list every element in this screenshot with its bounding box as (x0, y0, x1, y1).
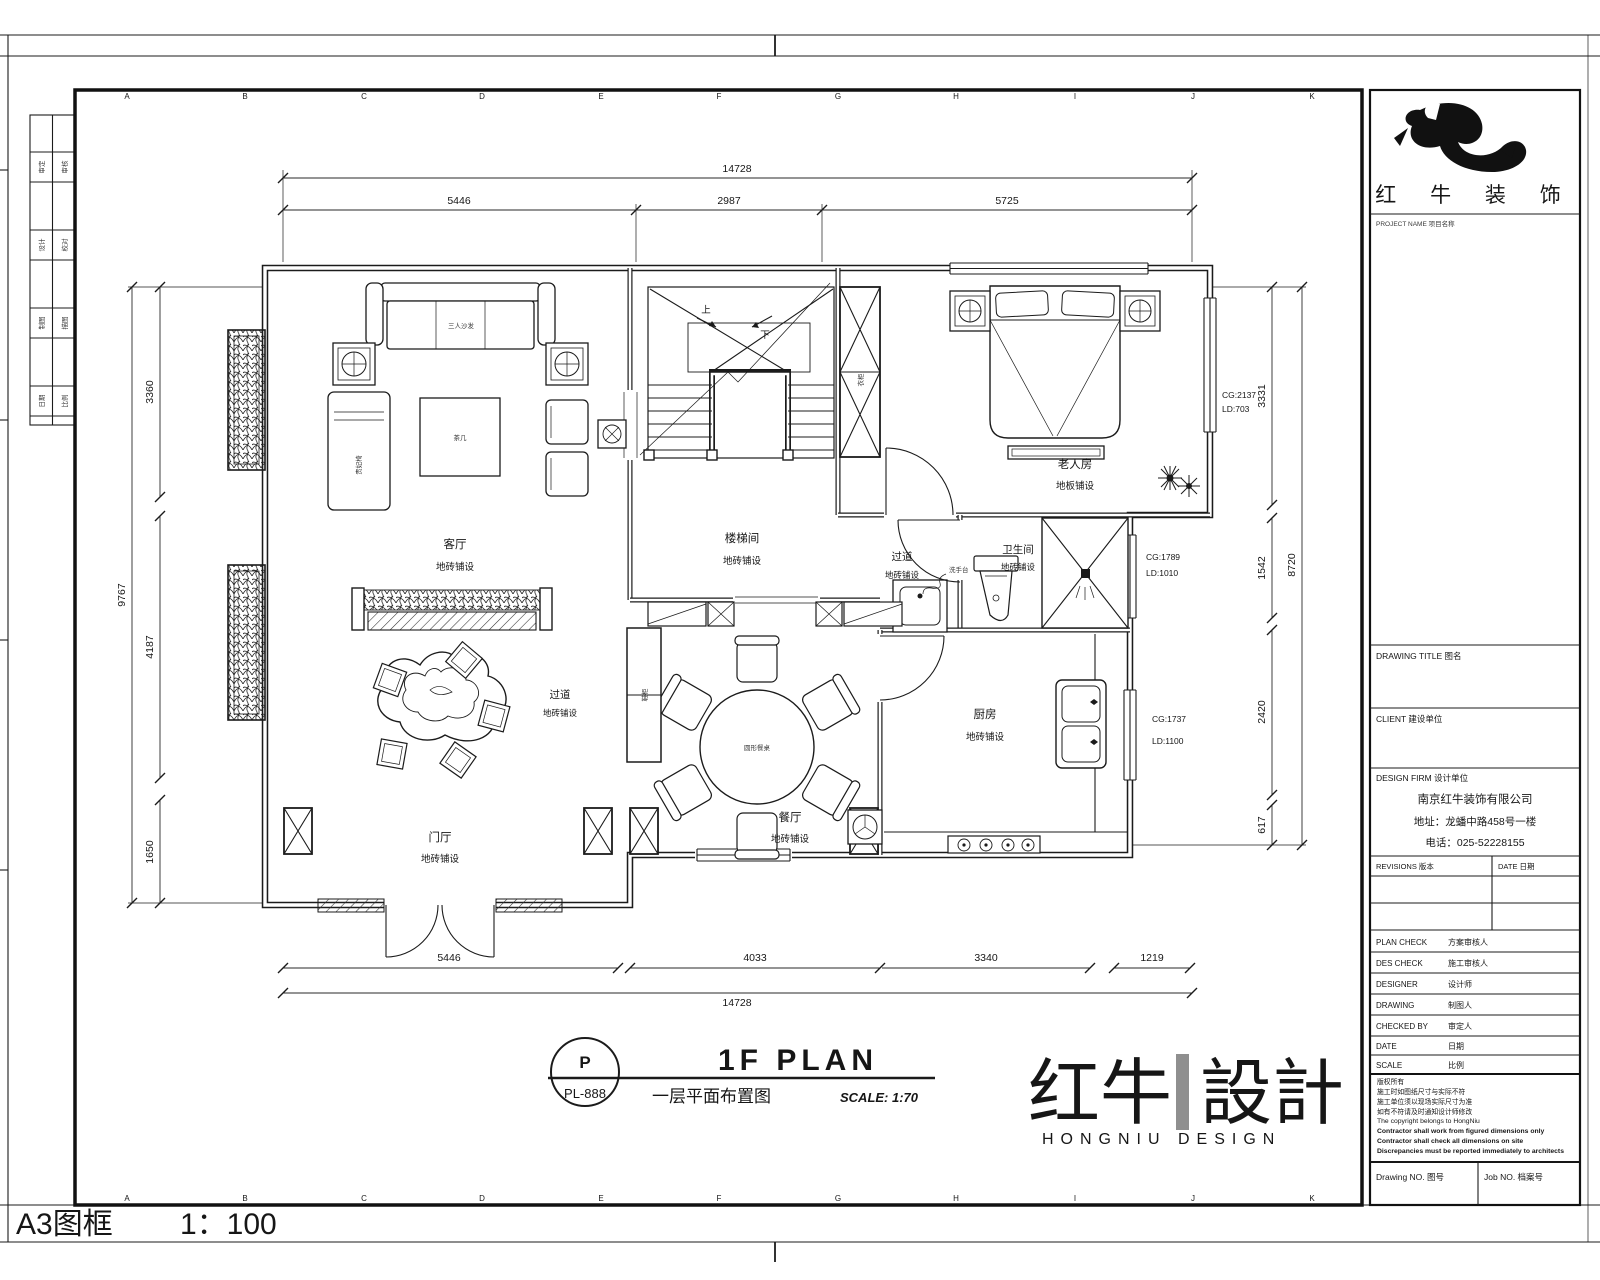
annotation: LD:1100 (1152, 736, 1184, 746)
dim-text: 5446 (447, 195, 471, 207)
grid-letter: D (479, 1194, 485, 1203)
grid-letter: A (124, 92, 130, 101)
grid-letter: F (717, 92, 722, 101)
fold-cell-label: 描图 (60, 317, 69, 330)
armchair (546, 452, 588, 496)
grid-letter: J (1191, 1194, 1195, 1203)
row-label-en: DESIGNER (1376, 980, 1418, 989)
note-line: Discrepancies must be reported immediate… (1377, 1148, 1564, 1155)
radiator (648, 602, 734, 626)
grid-letter: F (717, 1194, 722, 1203)
grid-letter: B (242, 1194, 247, 1203)
dim-text: 8720 (1286, 553, 1298, 577)
wardrobe-label: 衣柜 (856, 373, 865, 387)
row-label-en: DATE (1376, 1042, 1397, 1051)
bay-window-planter-bottom (228, 565, 265, 720)
company-phone: 电话：025-52228155 (1425, 836, 1524, 849)
bed (990, 286, 1120, 438)
room-label-bedroom: 老人房地板铺设 (1056, 458, 1095, 492)
dim-text: 3360 (144, 380, 156, 404)
note-line: 施工时如图纸尺寸与实际不符 (1377, 1087, 1466, 1096)
row-label-en: DRAWING (1376, 1001, 1414, 1010)
entry-decor (373, 642, 510, 778)
radiator (816, 602, 902, 626)
row-label-cn: 设计师 (1448, 979, 1472, 989)
dim-text: 14728 (722, 163, 751, 175)
side-table-lamp (333, 343, 375, 385)
svg-text:上: 上 (701, 305, 711, 316)
design-firm-label: DESIGN FIRM 设计单位 (1376, 773, 1469, 783)
annotation: CG:2137 (1222, 390, 1256, 400)
chaise-lounge: 贵妃椅 (328, 392, 390, 510)
window-right-2 (1123, 690, 1137, 780)
dim-right: 3331 1542 2420 617 8720 (1133, 282, 1307, 850)
title-code-letter: P (579, 1053, 590, 1072)
row-label-en: SCALE (1376, 1061, 1402, 1070)
row-label-cn: 施工审核人 (1448, 958, 1488, 968)
bathroom-fixtures: 洗手台 (893, 518, 1128, 632)
bedroom-door (886, 448, 953, 515)
dim-text: 3340 (974, 952, 998, 964)
a3-drawing-sheet: 审定 审核 设计 校对 制图 描图 日期 比例 A B C D E F G H … (0, 0, 1600, 1280)
room-label-kitchen: 厨房地砖铺设 (966, 708, 1005, 743)
a3-frame-scale: 1：100 (180, 1208, 277, 1241)
fold-cell-label: 比例 (60, 395, 69, 408)
armchair (546, 400, 588, 444)
dim-text: 4033 (743, 952, 767, 964)
grid-letter: I (1074, 1194, 1076, 1203)
fold-cell-label: 设计 (37, 238, 46, 252)
stair-down-arrow: 下 (752, 316, 772, 341)
svg-text:下: 下 (760, 330, 770, 341)
annotation: LD:703 (1222, 404, 1250, 414)
living-room-furniture: 三人沙发 贵妃椅 茶几 (328, 283, 626, 630)
svg-text:地砖铺设: 地砖铺设 (436, 561, 475, 573)
window-annotations: CG:2137 LD:703 CG:1789 LD:1010 CG:1737 L… (1146, 390, 1256, 746)
svg-text:门厅: 门厅 (429, 830, 452, 844)
date-col-label: DATE 日期 (1498, 862, 1535, 871)
svg-text:楼梯间: 楼梯间 (725, 531, 760, 545)
grid-letter: K (1309, 1194, 1315, 1203)
row-label-cn: 审定人 (1448, 1021, 1472, 1031)
plan-title-en: 1F PLAN (718, 1044, 878, 1077)
grid-letters-bottom: A B C D E F G H I J K (124, 1194, 1315, 1203)
svg-text:老人房: 老人房 (1058, 458, 1093, 471)
grid-letters-top: A B C D E F G H I J K (124, 92, 1315, 101)
annotation: LD:1010 (1146, 568, 1178, 578)
fold-cell-label: 日期 (38, 394, 46, 408)
note-line: The copyright belongs to HongNiu (1377, 1118, 1480, 1125)
sheet-format-label: A3图框 1：100 (16, 1208, 277, 1241)
grid-letter: C (361, 92, 367, 101)
window-bedroom-top (950, 262, 1148, 275)
svg-text:厨房: 厨房 (974, 708, 997, 721)
room-label-corridor-east: 过道地砖铺设 (885, 550, 920, 580)
dim-text: 617 (1256, 816, 1268, 834)
note-line: 如有不符请及时通知设计师修改 (1377, 1107, 1472, 1116)
svg-text:地板铺设: 地板铺设 (1056, 480, 1095, 492)
drawing-title-group: P PL-888 1F PLAN 一层平面布置图 SCALE: 1:70 (548, 1038, 935, 1106)
company-address: 地址：龙蟠中路458号一楼 (1414, 815, 1537, 828)
row-label-en: PLAN CHECK (1376, 938, 1428, 947)
stool (377, 739, 407, 769)
svg-text:地砖铺设: 地砖铺设 (543, 708, 578, 718)
dining-chair (735, 636, 779, 682)
row-label-cn: 日期 (1448, 1042, 1464, 1051)
fold-cell-label: 审核 (60, 160, 69, 174)
fold-cell-label: 校对 (60, 238, 69, 252)
company-name: 南京红牛装饰有限公司 (1418, 792, 1533, 806)
grid-letter: D (479, 92, 485, 101)
grid-letter: H (953, 1194, 959, 1203)
column-box (630, 808, 658, 854)
watermark-en: HONGNIU DESIGN (1042, 1131, 1281, 1148)
coffee-table-label: 茶几 (454, 433, 468, 442)
grid-letter: J (1191, 92, 1195, 101)
room-label-living: 客厅地砖铺设 (436, 537, 475, 573)
client-label: CLIENT 建设单位 (1376, 714, 1443, 724)
shoe-cabinet-label: 鞋柜 (640, 688, 649, 702)
kitchen-fixtures (848, 634, 1128, 853)
basin-label: 洗手台 (949, 565, 969, 574)
watermark-divider (1176, 1054, 1189, 1130)
grid-letter: E (598, 92, 603, 101)
stool (440, 742, 476, 778)
wardrobe-cabinet: 衣柜 (840, 287, 880, 457)
company-logo-text: 红 牛 装 饰 (1375, 184, 1575, 207)
svg-text:地砖铺设: 地砖铺设 (885, 570, 920, 580)
fold-strip-table: 审定 审核 设计 校对 制图 描图 日期 比例 (30, 115, 75, 425)
floor-drain-box (598, 420, 626, 448)
a3-frame-label: A3图框 (16, 1208, 113, 1241)
tv-feature-wall (352, 588, 552, 630)
dim-text: 14728 (722, 997, 751, 1009)
window-bedroom-right (1203, 298, 1217, 432)
grid-letter: H (953, 92, 959, 101)
nightstand-lamp (1120, 291, 1160, 331)
watermark-cn-left: 红牛 (1028, 1054, 1172, 1134)
annotation: CG:1789 (1146, 552, 1180, 562)
watermark: 红牛 設計 HONGNIU DESIGN (1028, 1054, 1344, 1148)
dining-furniture: 圆形餐桌 (653, 636, 861, 859)
drawing-no-label: Drawing NO. 图号 (1376, 1172, 1444, 1182)
room-label-entry: 门厅地砖铺设 (421, 830, 460, 865)
coffee-table: 茶几 (420, 398, 500, 476)
row-label-cn: 比例 (1448, 1060, 1464, 1070)
sofa: 三人沙发 (366, 283, 555, 349)
grid-letter: I (1074, 92, 1076, 101)
room-label-stairwell: 楼梯间地砖铺设 (723, 531, 762, 567)
grid-letter: K (1309, 92, 1315, 101)
title-block: 红 牛 装 饰 PROJECT NAME 项目名称 DRAWING TITLE … (1370, 90, 1580, 1205)
svg-text:地砖铺设: 地砖铺设 (1001, 562, 1036, 572)
bay-window-planter-top (228, 330, 265, 470)
svg-text:地砖铺设: 地砖铺设 (966, 731, 1005, 743)
watermark-cn-right: 設計 (1200, 1054, 1344, 1134)
column-box (584, 808, 612, 854)
grid-letter: A (124, 1194, 130, 1203)
note-line: 版权所有 (1377, 1077, 1404, 1086)
sofa-label: 三人沙发 (448, 321, 475, 330)
cooktop (948, 836, 1040, 853)
plan-title-cn: 一层平面布置图 (652, 1087, 771, 1106)
grid-letter: G (835, 92, 841, 101)
room-label-corridor-west: 过道地砖铺设 (543, 688, 578, 718)
fold-cell-label: 制图 (37, 317, 46, 330)
drawing-title-label: DRAWING TITLE 图名 (1376, 651, 1461, 661)
grid-letters: A B C D E F G H I J K A B C D E F G H I … (124, 92, 1315, 1203)
note-line: Contractor shall work from figured dimen… (1377, 1128, 1545, 1135)
grid-letter: B (242, 92, 247, 101)
row-label-cn: 方案审核人 (1448, 937, 1488, 947)
job-no-label: Job NO. 档案号 (1484, 1172, 1543, 1182)
row-label-en: CHECKED BY (1376, 1022, 1429, 1031)
row-label-en: DES CHECK (1376, 959, 1423, 968)
kitchen-sink (1056, 680, 1106, 768)
kitchen-door (880, 636, 944, 700)
svg-text:卫生间: 卫生间 (1002, 543, 1034, 556)
svg-text:地砖铺设: 地砖铺设 (771, 833, 810, 845)
dim-text: 2987 (717, 195, 741, 207)
floor-plan-canvas: 审定 审核 设计 校对 制图 描图 日期 比例 A B C D E F G H … (0, 0, 1600, 1280)
annotation: CG:1737 (1152, 714, 1186, 724)
note-line: Contractor shall check all dimensions on… (1377, 1138, 1523, 1145)
dim-text: 9767 (116, 583, 128, 607)
dim-text: 1219 (1140, 952, 1164, 964)
dim-top: 14728 5446 2987 5725 (278, 163, 1197, 262)
note-line: 施工单位须以现场实际尺寸为准 (1377, 1097, 1472, 1106)
dim-text: 4187 (144, 635, 156, 659)
floor-drain (848, 810, 882, 844)
grid-letter: G (835, 1194, 841, 1203)
shower-area (1042, 518, 1128, 628)
project-name-label: PROJECT NAME 项目名称 (1376, 219, 1455, 228)
plan-scale-note: SCALE: 1:70 (840, 1090, 919, 1105)
svg-text:地砖铺设: 地砖铺设 (421, 853, 460, 865)
svg-text:地砖铺设: 地砖铺设 (723, 555, 762, 567)
nightstand-lamp (950, 291, 990, 331)
dim-text: 1542 (1256, 556, 1268, 580)
side-table-lamp (546, 343, 588, 385)
dim-text: 5725 (995, 195, 1019, 207)
column-box (284, 808, 312, 854)
dim-text: 2420 (1256, 700, 1268, 724)
revisions-label: REVISIONS 版本 (1376, 861, 1434, 871)
dim-text: 3331 (1256, 384, 1268, 408)
grid-letter: E (598, 1194, 603, 1203)
grid-letter: C (361, 1194, 367, 1203)
staircase: 上 下 (640, 283, 834, 460)
row-label-cn: 制图人 (1448, 1000, 1472, 1010)
svg-text:客厅: 客厅 (444, 537, 467, 551)
title-code-number: PL-888 (564, 1086, 606, 1101)
svg-text:餐厅: 餐厅 (779, 810, 802, 824)
svg-text:过道: 过道 (550, 688, 571, 701)
dim-text: 5446 (437, 952, 461, 964)
plant (1158, 466, 1200, 497)
dining-table-label: 圆形餐桌 (744, 743, 771, 752)
bed-bench (1008, 446, 1104, 459)
svg-text:过道: 过道 (892, 550, 913, 563)
chaise-label: 贵妃椅 (354, 455, 363, 475)
hall-cabinet: 鞋柜 (627, 628, 661, 762)
dim-bottom: 5446 4033 3340 1219 14728 (278, 952, 1197, 1009)
dim-text: 1650 (144, 840, 156, 864)
fold-cell-label: 审定 (37, 160, 46, 174)
